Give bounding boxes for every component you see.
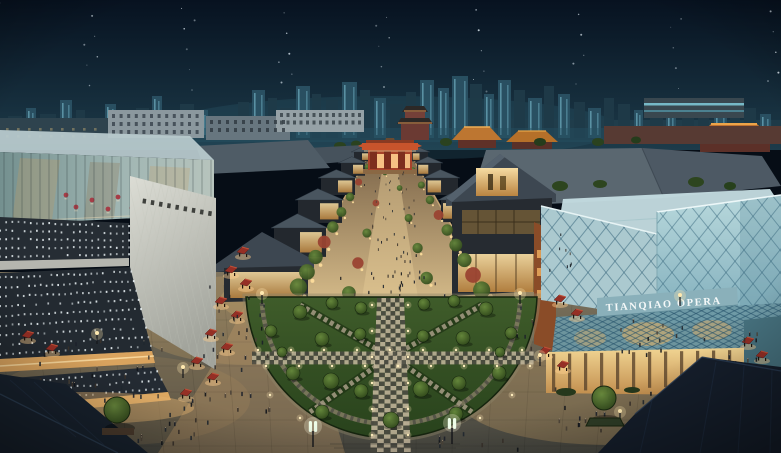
night-aerial-rendering: TIANQIAO OPERA [0,0,781,453]
vignette [0,0,781,453]
